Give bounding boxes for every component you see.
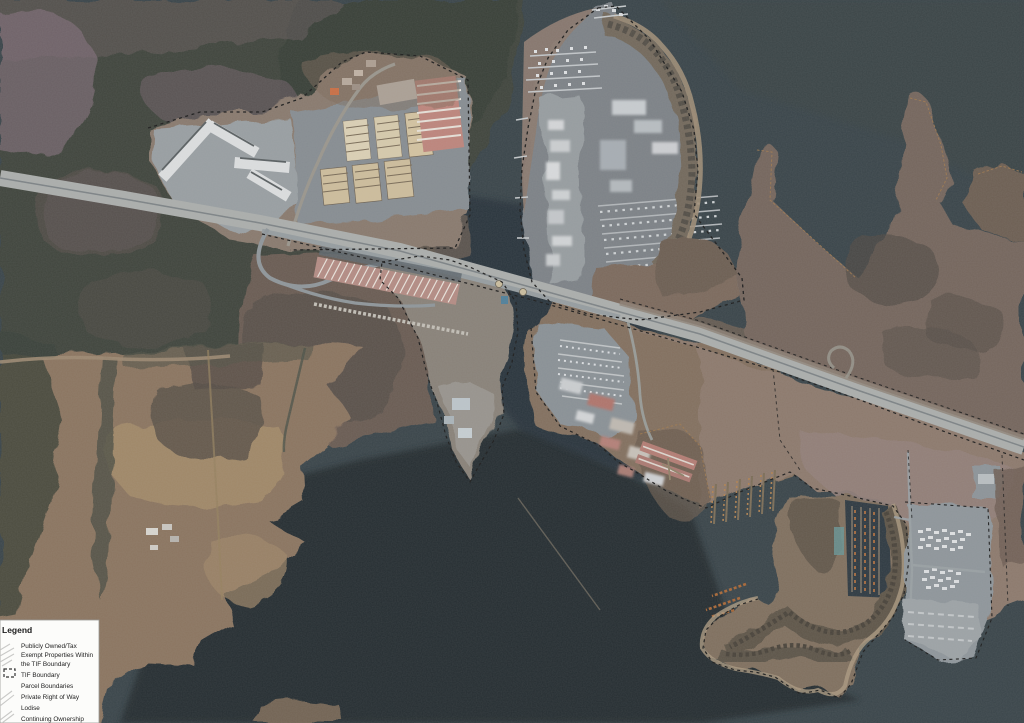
svg-text:the TIF Boundary: the TIF Boundary (21, 661, 71, 668)
svg-text:Lodise: Lodise (21, 705, 40, 712)
svg-text:Parcel Boundaries: Parcel Boundaries (21, 683, 73, 690)
svg-text:Continuing Ownership: Continuing Ownership (21, 716, 84, 723)
svg-text:TIF Boundary: TIF Boundary (21, 672, 61, 679)
svg-text:Private Right of Way: Private Right of Way (21, 694, 80, 701)
svg-text:Publicly Owned/Tax: Publicly Owned/Tax (21, 643, 78, 650)
svg-text:Exempt Properties Within: Exempt Properties Within (21, 652, 94, 659)
svg-text:Legend: Legend (2, 625, 32, 635)
